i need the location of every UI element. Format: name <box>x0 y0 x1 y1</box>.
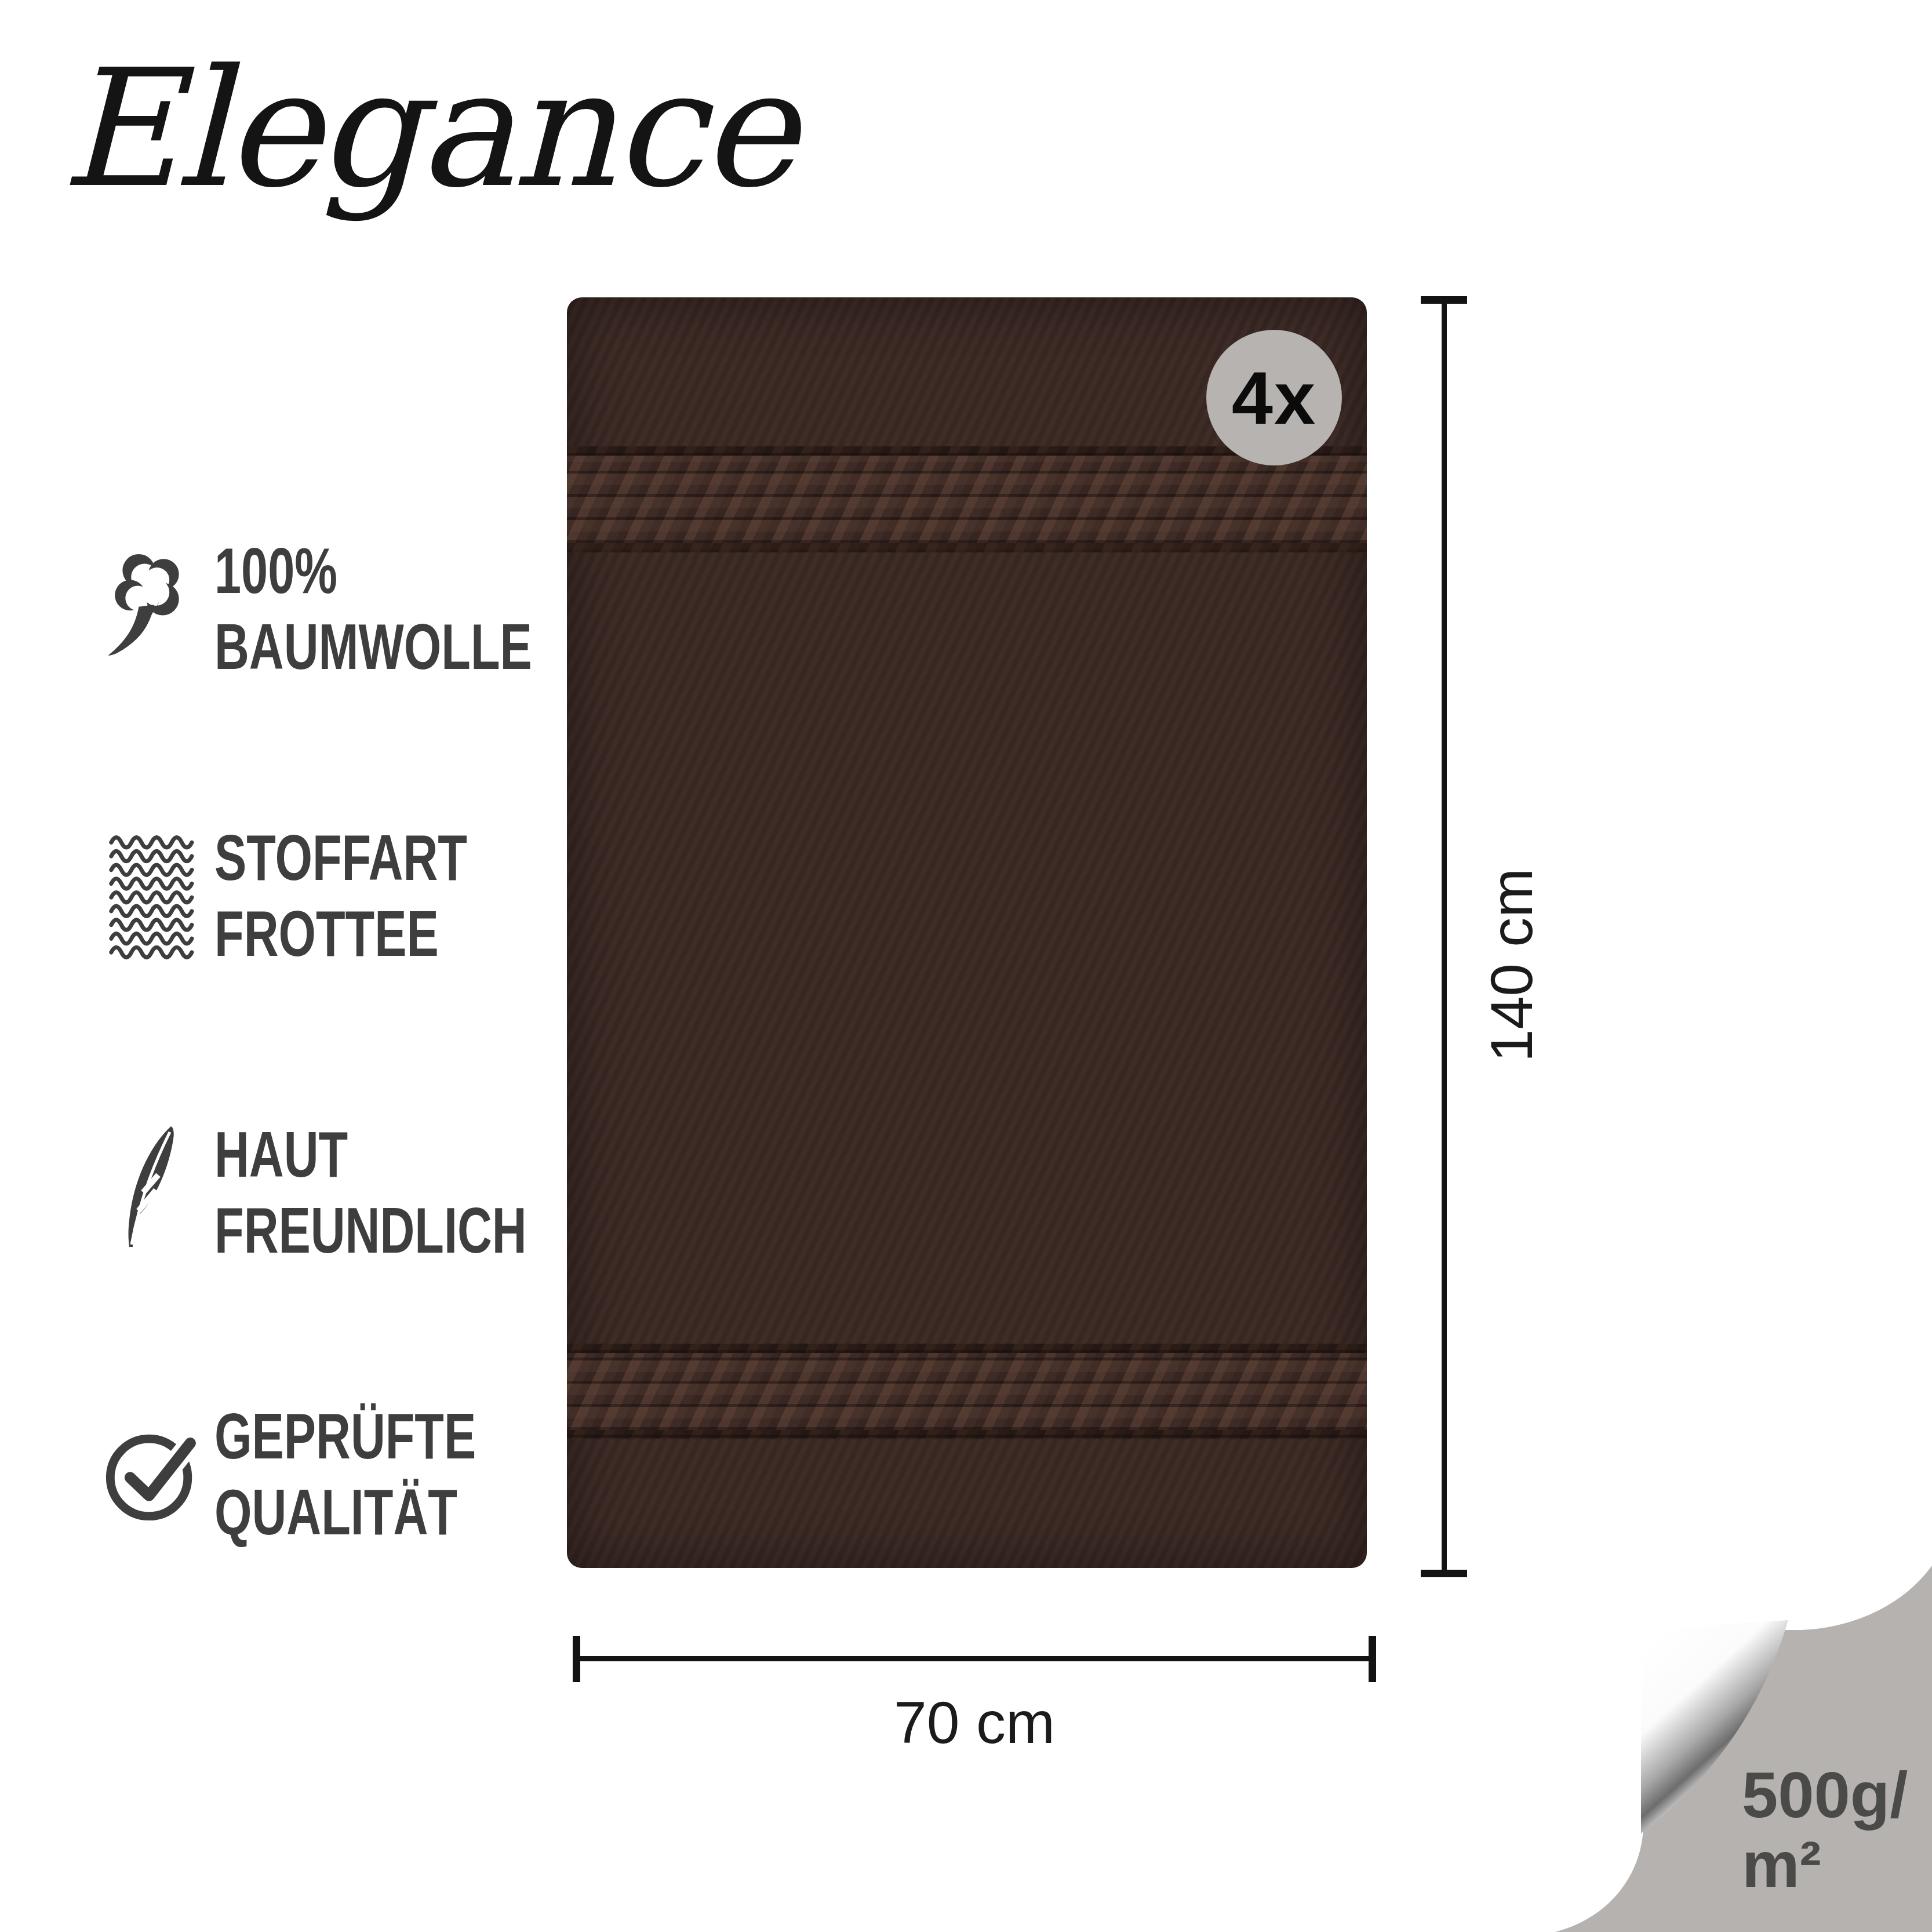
height-dimension-line <box>1442 299 1447 1573</box>
weight-line1: 500g/ <box>1742 1759 1908 1831</box>
towel-image <box>567 297 1367 1568</box>
check-circle-icon <box>90 1422 214 1526</box>
brand-logo: Elegance <box>61 39 794 218</box>
towel-border-band-bottom <box>567 1344 1367 1439</box>
width-dimension-line <box>575 1656 1374 1661</box>
feature-label: STOFFART FROTTEE <box>214 820 467 972</box>
cotton-icon <box>90 547 214 670</box>
quantity-badge: 4x <box>1206 330 1342 465</box>
feature-line: FREUNDLICH <box>214 1192 527 1268</box>
height-dimension-label: 140 cm <box>1478 868 1546 1063</box>
product-infographic: Elegance 100% BAUMWOLLE <box>0 0 1932 1932</box>
width-dimension-label: 70 cm <box>894 1689 1055 1757</box>
width-dimension-tick-right <box>1369 1636 1376 1682</box>
feature-line: STOFFART <box>214 820 467 896</box>
feature-line: 100% <box>214 533 532 609</box>
feature-label: HAUT FREUNDLICH <box>214 1116 527 1268</box>
feature-line: FROTTEE <box>214 896 467 972</box>
feature-label: 100% BAUMWOLLE <box>214 533 532 685</box>
width-dimension-tick-left <box>573 1636 580 1682</box>
height-dimension-tick-top <box>1421 296 1467 304</box>
weight-line2: m² <box>1742 1828 1821 1901</box>
fabric-texture-icon <box>90 831 214 960</box>
feather-icon <box>90 1123 214 1262</box>
feature-line: QUALITÄT <box>214 1474 476 1550</box>
feature-label: GEPRÜFTE QUALITÄT <box>214 1398 476 1550</box>
quantity-badge-label: 4x <box>1232 355 1316 441</box>
towel-border-band-top <box>567 446 1367 552</box>
height-dimension-tick-bottom <box>1421 1570 1467 1577</box>
page-curl: 500g/ m² <box>1555 1555 1932 1932</box>
feature-line: BAUMWOLLE <box>214 609 532 685</box>
feature-line: HAUT <box>214 1116 527 1192</box>
feature-line: GEPRÜFTE <box>214 1398 476 1474</box>
